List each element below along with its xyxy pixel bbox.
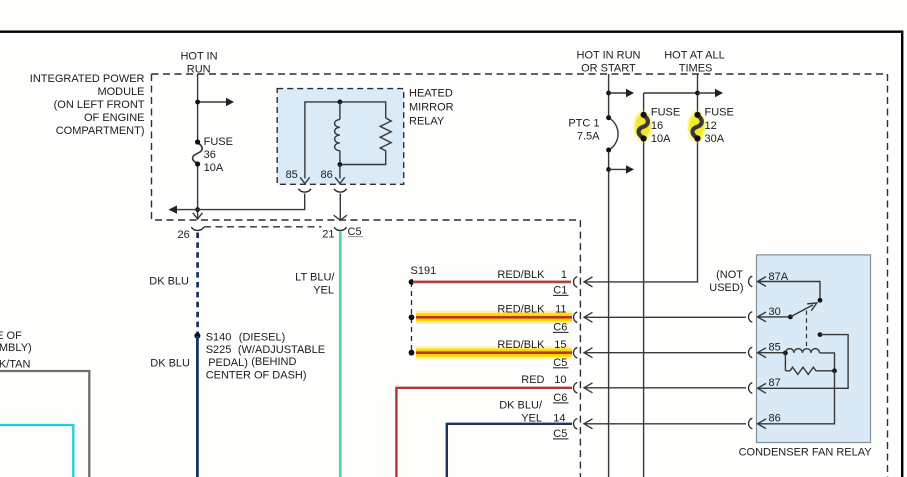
svg-text:1: 1 bbox=[561, 269, 567, 281]
svg-text:FUSE: FUSE bbox=[651, 107, 680, 119]
svg-text:86: 86 bbox=[320, 169, 332, 181]
svg-text:S225: S225 bbox=[206, 344, 232, 356]
svg-text:C5: C5 bbox=[348, 226, 362, 238]
svg-text:PEDAL): PEDAL) bbox=[208, 357, 248, 369]
svg-text:C1: C1 bbox=[553, 285, 567, 297]
svg-text:15: 15 bbox=[554, 339, 566, 351]
svg-text:7.5A: 7.5A bbox=[577, 130, 600, 142]
svg-text:C5: C5 bbox=[553, 428, 567, 440]
svg-text:10A: 10A bbox=[204, 162, 224, 174]
svg-text:10A: 10A bbox=[651, 133, 671, 145]
svg-text:MIRROR: MIRROR bbox=[409, 102, 454, 114]
svg-text:HOT IN RUN: HOT IN RUN bbox=[577, 50, 641, 62]
svg-text:DK BLU: DK BLU bbox=[150, 358, 190, 370]
svg-text:30A: 30A bbox=[705, 133, 725, 145]
svg-text:85: 85 bbox=[769, 342, 781, 354]
svg-text:HOT IN: HOT IN bbox=[180, 51, 217, 63]
svg-text:(ON LEFT FRONT: (ON LEFT FRONT bbox=[54, 99, 145, 111]
svg-text:YEL: YEL bbox=[313, 284, 334, 296]
svg-text:INTEGRATED POWER: INTEGRATED POWER bbox=[30, 73, 145, 85]
svg-text:C6: C6 bbox=[553, 392, 567, 404]
svg-text:10: 10 bbox=[554, 374, 566, 386]
svg-text:RUN: RUN bbox=[187, 63, 211, 75]
svg-text:30: 30 bbox=[769, 306, 781, 318]
svg-text:87: 87 bbox=[769, 377, 781, 389]
svg-text:USED): USED) bbox=[709, 282, 743, 294]
svg-text:PTC 1: PTC 1 bbox=[568, 117, 599, 129]
svg-text:FUSE: FUSE bbox=[204, 136, 233, 148]
svg-text:COMPARTMENT): COMPARTMENT) bbox=[56, 125, 145, 137]
svg-text:LT BLU/: LT BLU/ bbox=[295, 272, 335, 284]
svg-text:12: 12 bbox=[705, 120, 717, 132]
svg-text:16: 16 bbox=[651, 120, 663, 132]
svg-text:(W/ADJUSTABLE: (W/ADJUSTABLE bbox=[238, 344, 325, 356]
svg-text:DK BLU: DK BLU bbox=[149, 276, 189, 288]
svg-text:C5: C5 bbox=[553, 357, 567, 369]
svg-text:CENTER OF DASH): CENTER OF DASH) bbox=[206, 370, 307, 382]
svg-text:RED/BLK: RED/BLK bbox=[497, 304, 545, 316]
svg-text:86: 86 bbox=[769, 413, 781, 425]
svg-text:C6: C6 bbox=[553, 322, 567, 334]
svg-text:RED/BLK: RED/BLK bbox=[497, 339, 545, 351]
svg-text:26: 26 bbox=[178, 229, 190, 241]
svg-text:OF ENGINE: OF ENGINE bbox=[84, 112, 145, 124]
svg-text:11: 11 bbox=[555, 304, 566, 316]
svg-text:RED: RED bbox=[521, 374, 544, 386]
svg-text:CONDENSER FAN RELAY: CONDENSER FAN RELAY bbox=[739, 447, 873, 459]
svg-text:(DIESEL): (DIESEL) bbox=[239, 332, 285, 344]
svg-text:(NOT: (NOT bbox=[716, 269, 743, 281]
svg-text:MBLY): MBLY) bbox=[0, 342, 32, 354]
svg-text:87A: 87A bbox=[769, 271, 789, 283]
svg-text:14: 14 bbox=[553, 413, 565, 425]
svg-text:HOT AT ALL: HOT AT ALL bbox=[664, 50, 725, 62]
svg-text:S191: S191 bbox=[411, 265, 437, 277]
svg-text:E OF: E OF bbox=[0, 330, 22, 342]
svg-text:(BEHIND: (BEHIND bbox=[251, 356, 296, 368]
svg-text:21: 21 bbox=[322, 229, 334, 241]
svg-text:OR START: OR START bbox=[581, 63, 636, 75]
svg-text:RED/BLK: RED/BLK bbox=[497, 269, 545, 281]
svg-text:FUSE: FUSE bbox=[705, 107, 734, 119]
svg-text:85: 85 bbox=[286, 169, 298, 181]
svg-text:K/TAN: K/TAN bbox=[0, 359, 30, 371]
svg-text:MODULE: MODULE bbox=[97, 86, 144, 98]
svg-text:36: 36 bbox=[204, 149, 216, 161]
svg-text:TIMES: TIMES bbox=[679, 63, 713, 75]
svg-text:DK BLU/: DK BLU/ bbox=[499, 400, 543, 412]
svg-text:HEATED: HEATED bbox=[409, 88, 453, 100]
svg-text:S140: S140 bbox=[206, 332, 232, 344]
svg-text:YEL: YEL bbox=[521, 413, 542, 425]
svg-text:RELAY: RELAY bbox=[409, 116, 445, 128]
